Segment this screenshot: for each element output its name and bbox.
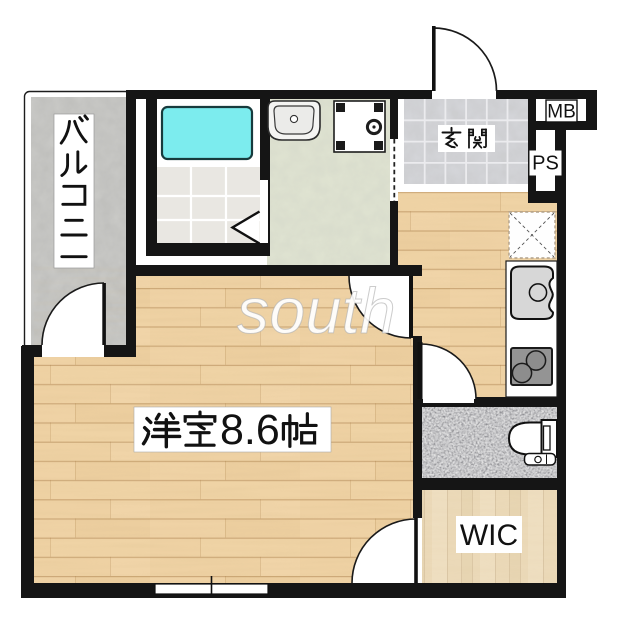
svg-text:MB: MB	[547, 102, 576, 123]
svg-text:south: south	[237, 275, 396, 347]
svg-text:WIC: WIC	[460, 519, 518, 552]
svg-text:8.6: 8.6	[220, 406, 280, 454]
svg-text:PS: PS	[532, 153, 559, 175]
